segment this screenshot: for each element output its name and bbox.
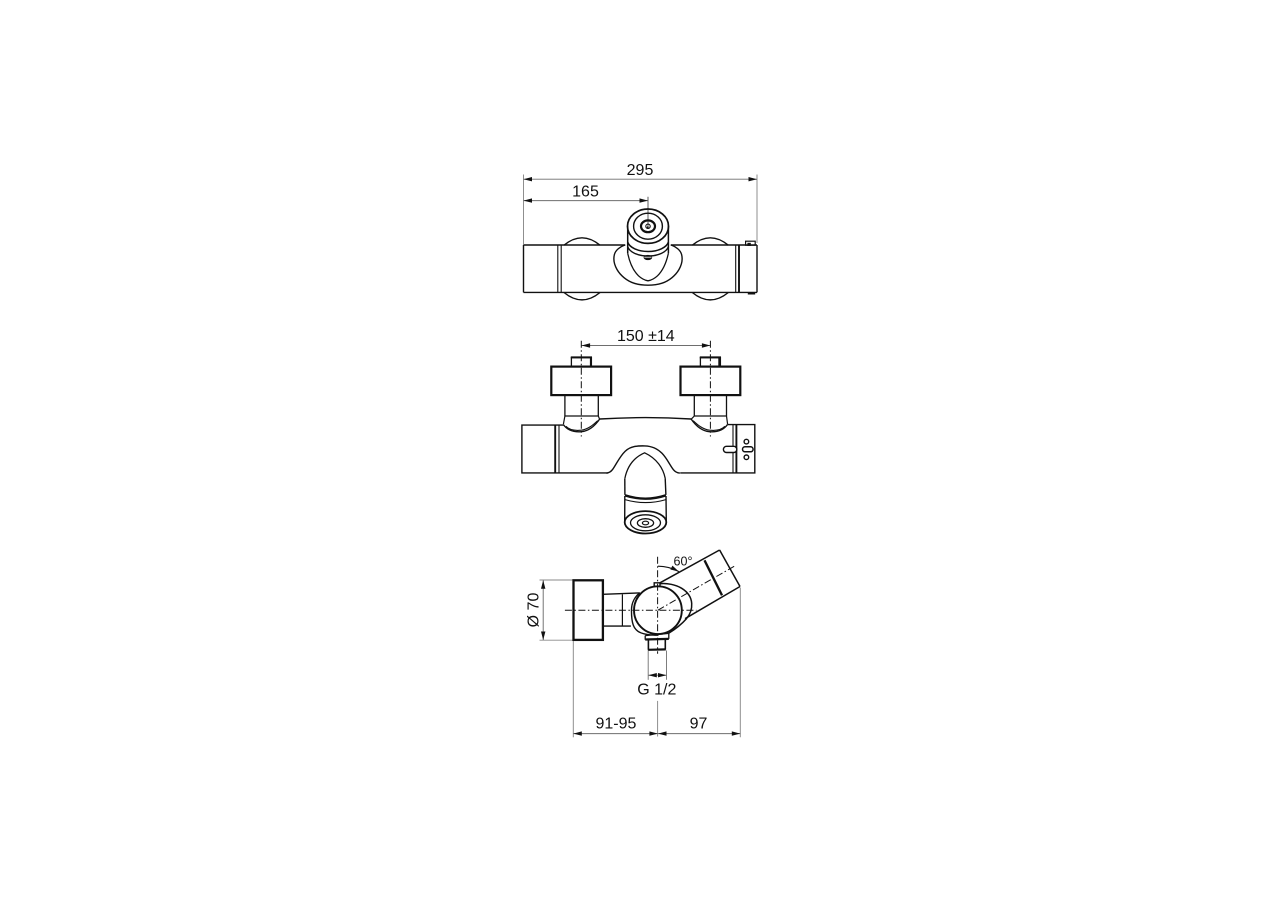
svg-text:295: 295 [627, 162, 654, 179]
svg-text:Ø 70: Ø 70 [526, 593, 543, 628]
svg-text:G 1/2: G 1/2 [637, 681, 676, 698]
svg-text:91-95: 91-95 [595, 716, 636, 733]
svg-text:150 ±14: 150 ±14 [617, 328, 675, 345]
svg-text:165: 165 [572, 183, 599, 200]
svg-text:60°: 60° [674, 555, 693, 569]
svg-text:97: 97 [690, 716, 708, 733]
